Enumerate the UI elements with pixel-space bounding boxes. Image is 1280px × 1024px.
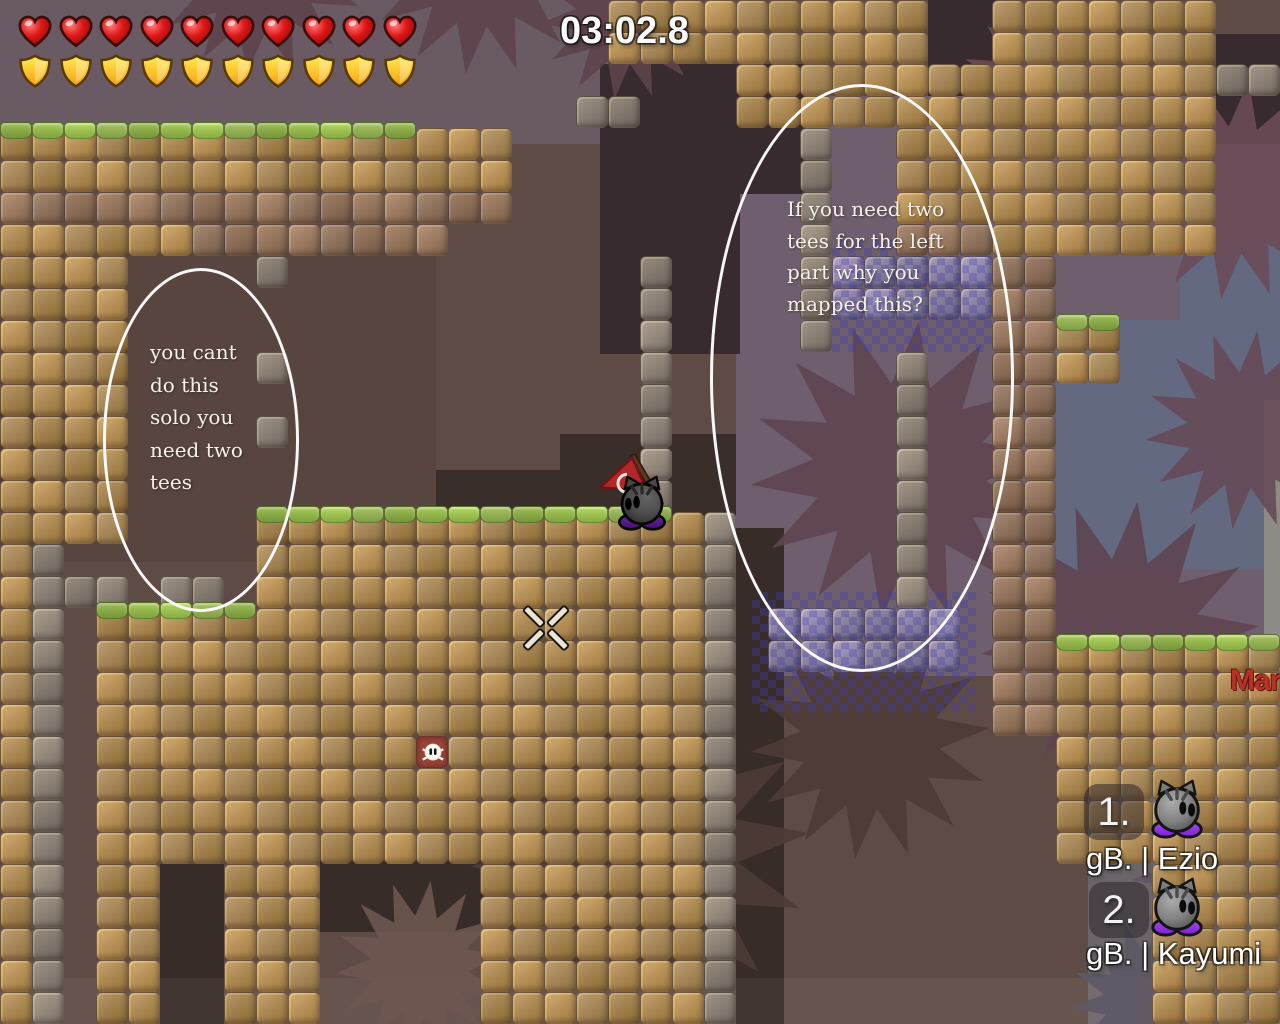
cat-tee-icon	[1146, 778, 1208, 840]
player-name: gB. | Ezio	[1086, 841, 1218, 877]
rank-badge: 2.	[1089, 882, 1149, 938]
cat-tee-icon	[1146, 876, 1208, 938]
player-name: gB. | Kayumi	[1086, 936, 1261, 972]
tee-avatar	[1146, 876, 1208, 943]
spectator-scoreboard: 1. gB. | Ezio2. gB. | Kayumi	[0, 0, 1280, 1024]
rank-badge: 1.	[1084, 784, 1144, 840]
game-viewport[interactable]: you cantdo thissolo youneed twotees If y…	[0, 0, 1280, 1024]
tee-avatar	[1146, 778, 1208, 845]
